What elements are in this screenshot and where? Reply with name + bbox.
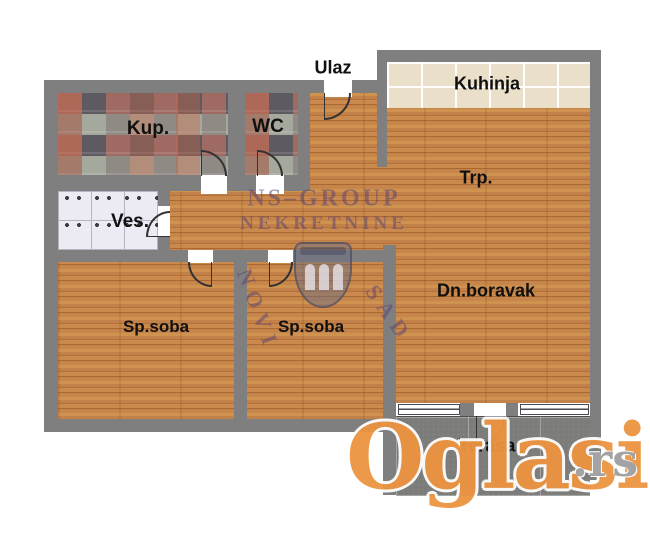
label-livingroom: Dn.boravak xyxy=(437,281,535,302)
label-dining: Trp. xyxy=(459,168,492,189)
shield-arch-2 xyxy=(319,264,329,290)
wall-outer-top-left xyxy=(44,80,324,93)
wall-bath-wc-divider xyxy=(228,93,245,175)
label-entrance: Ulaz xyxy=(314,58,351,79)
watermark-agency-type: NEKRETNINE xyxy=(240,213,408,235)
shield-arch-3 xyxy=(333,264,343,290)
shield-banner xyxy=(300,247,346,255)
watermark-portal-tld: .rs xyxy=(572,437,638,483)
shield-arch-1 xyxy=(305,264,315,290)
label-wc: WC xyxy=(252,116,284,138)
label-laundry: Ves. xyxy=(111,211,149,233)
bathroom-door-opening xyxy=(201,175,227,194)
label-bathroom: Kup. xyxy=(127,118,169,140)
label-kitchen: Kuhinja xyxy=(454,74,520,95)
watermark-agency-name: NS–GROUP xyxy=(247,186,400,213)
label-bedroom1: Sp.soba xyxy=(123,317,189,337)
floor-plan: Ulaz Kup. WC Ves. Kuhinja Trp. Dn.borava… xyxy=(0,0,650,533)
wall-kitchen-top xyxy=(377,50,601,62)
wall-wc-right xyxy=(298,93,310,175)
wall-outer-bottom xyxy=(44,419,396,432)
label-bedroom2: Sp.soba xyxy=(278,317,344,337)
wall-kitchen-left xyxy=(377,50,387,167)
